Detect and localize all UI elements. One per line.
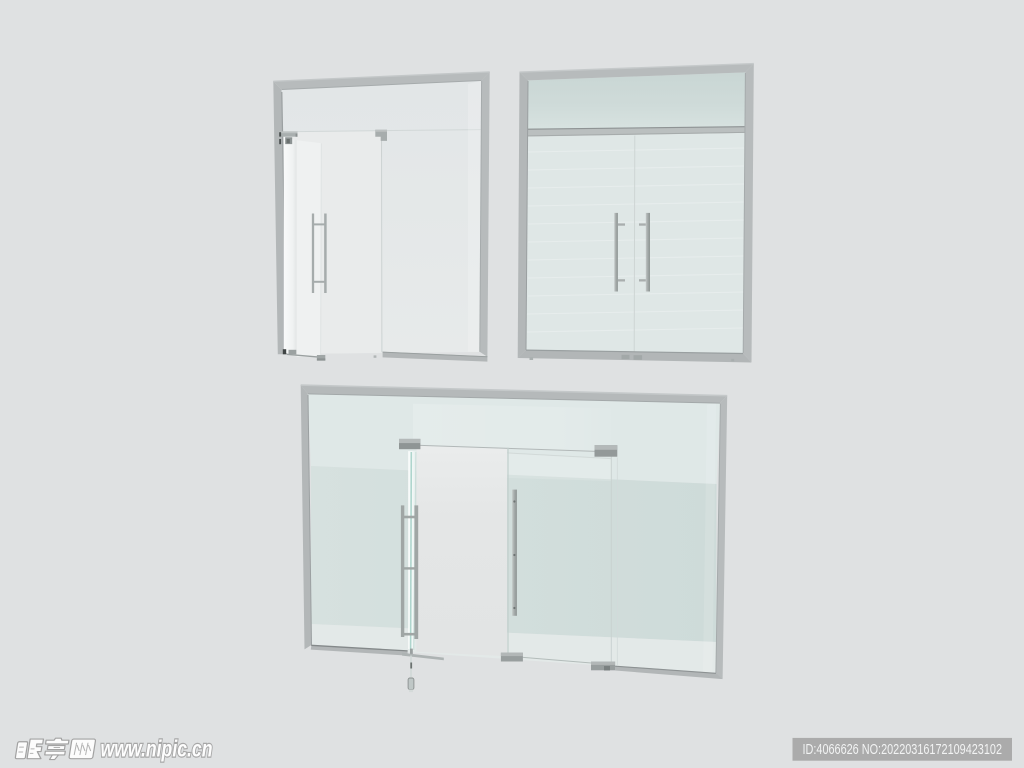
svg-text:ID:4066626 NO:2022031617210942: ID:4066626 NO:20220316172109423102 xyxy=(803,742,1003,758)
svg-text:www.nipic.cn: www.nipic.cn xyxy=(101,736,213,762)
